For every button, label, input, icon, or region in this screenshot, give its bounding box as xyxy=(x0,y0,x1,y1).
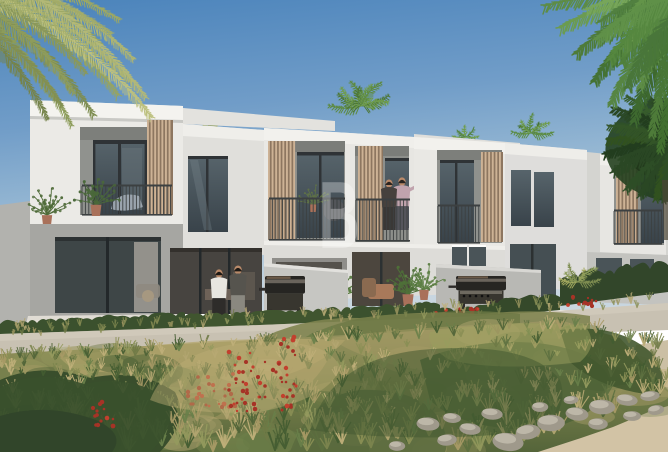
svg-text:B: B xyxy=(319,162,360,269)
